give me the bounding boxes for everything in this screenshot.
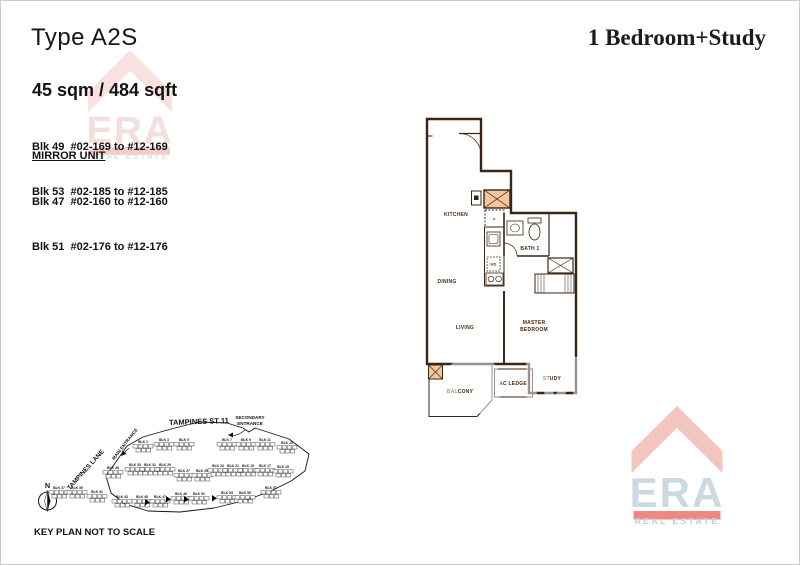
keyplan-blk-17: BLK 17 xyxy=(255,464,275,476)
era-watermark-bottom-right: ERA REAL ESTATE xyxy=(629,399,725,525)
block-line: Blk 47 #02-160 to #12-160 xyxy=(32,195,168,210)
keyplan-blk-5: BLK 5 xyxy=(174,438,194,450)
svg-text:BLK 35: BLK 35 xyxy=(107,466,119,470)
main-entrance-label: MAIN ENTRANCE xyxy=(111,427,139,460)
keyplan-blk-7: BLK 7 xyxy=(217,438,237,450)
svg-text:BLK 13: BLK 13 xyxy=(281,441,293,445)
mirror-unit-label: MIRROR UNIT xyxy=(32,150,105,162)
room-label-dining: DINING xyxy=(438,279,457,285)
svg-text:BLK 43: BLK 43 xyxy=(116,495,128,499)
block-line: Blk 51 #02-176 to #12-176 xyxy=(32,240,168,255)
svg-text:BLK 31: BLK 31 xyxy=(144,463,156,467)
floorplan-page: ERA REAL ESTATE Type A2S 1 Bedroom+Study… xyxy=(0,0,800,565)
keyplan-blk-43: BLK 43 xyxy=(112,495,132,507)
svg-text:BLK 7: BLK 7 xyxy=(222,438,232,442)
era-tagline-text: REAL ESTATE xyxy=(635,516,720,525)
compass-needle-light xyxy=(45,491,48,512)
kitchen-counter xyxy=(485,227,505,286)
svg-text:BLK 3: BLK 3 xyxy=(159,438,169,442)
entry-door-arc xyxy=(459,133,481,155)
svg-text:BLK 57: BLK 57 xyxy=(265,486,277,490)
svg-text:BLK 1: BLK 1 xyxy=(138,440,148,444)
unit-area: 45 sqm / 484 sqft xyxy=(32,80,177,101)
keyplan-blk-41: BLK 41 xyxy=(87,490,107,502)
burner xyxy=(496,276,502,282)
keyplan-blk-55: BLK 55 xyxy=(235,491,255,503)
room-labels: KITCHENDININGLIVINGMASTERBEDROOMBATH 1BA… xyxy=(438,212,562,395)
room-label-kitchen: KITCHEN xyxy=(444,212,468,218)
era-chevron-icon xyxy=(632,406,723,473)
tampines-lane-label: TAMPINES LANE xyxy=(66,448,106,492)
svg-text:BLK 5: BLK 5 xyxy=(179,438,189,442)
keyplan-drawing: TAMPINES ST 11 SECONDARY ENTRANCE MAIN E… xyxy=(31,401,321,541)
keyplan-blk-53: BLK 53 xyxy=(212,491,237,503)
keyplan-blk-1: BLK 1 xyxy=(133,440,153,452)
svg-text:BLK 17: BLK 17 xyxy=(259,464,271,468)
era-brand-text: ERA xyxy=(630,469,725,516)
svg-text:BLK 19: BLK 19 xyxy=(242,464,254,468)
room-label-wd: WD xyxy=(490,263,496,267)
unit-outline xyxy=(427,119,576,393)
keyplan-blk-27: BLK 27 xyxy=(174,469,194,481)
svg-text:BLK 11: BLK 11 xyxy=(259,438,271,442)
room-label-living: LIVING xyxy=(456,325,474,331)
svg-text:BLK 29: BLK 29 xyxy=(159,463,171,467)
svg-text:BLK 25: BLK 25 xyxy=(196,469,208,473)
svg-text:BLK 21: BLK 21 xyxy=(227,464,239,468)
svg-text:BLK 15: BLK 15 xyxy=(277,465,289,469)
keyplan-blk-11: BLK 11 xyxy=(255,438,275,450)
keyplan-street-label: TAMPINES ST 11 xyxy=(169,416,229,427)
secondary-entrance-arrowhead xyxy=(228,433,233,438)
svg-text:BLK 39: BLK 39 xyxy=(71,486,83,490)
keyplan-blk-15: BLK 15 xyxy=(273,465,293,477)
room-label-bath-1: BATH 1 xyxy=(520,246,539,252)
secondary-entrance-label: SECONDARY xyxy=(235,415,264,420)
floorplan-drawing: KITCHENDININGLIVINGMASTERBEDROOMBATH 1BA… xyxy=(406,106,606,421)
svg-text:BLK 37: BLK 37 xyxy=(53,486,65,490)
room-label-study: STUDY xyxy=(543,376,562,382)
room-label-ac-ledge: AC LEDGE xyxy=(499,381,527,387)
svg-text:BLK 23: BLK 23 xyxy=(212,464,224,468)
toilet-bowl xyxy=(529,224,540,240)
keyplan-note: KEY PLAN NOT TO SCALE xyxy=(34,527,155,538)
keyplan-blk-9: BLK 9 xyxy=(236,438,256,450)
mirror-block-list: Blk 47 #02-160 to #12-160 Blk 51 #02-176… xyxy=(32,165,168,285)
sink-basin xyxy=(489,235,498,244)
bath-door-arc xyxy=(504,243,517,256)
keyplan-blk-29: BLK 29 xyxy=(155,463,175,475)
room-label-master-bedroom: MASTERBEDROOM xyxy=(520,320,548,333)
svg-text:BLK 33: BLK 33 xyxy=(129,463,141,467)
toilet-tank xyxy=(528,218,541,223)
svg-text:BLK 45: BLK 45 xyxy=(136,495,148,499)
db-dot xyxy=(474,196,479,201)
north-label: N xyxy=(45,483,50,490)
basin xyxy=(507,221,523,235)
page-title: Type A2S xyxy=(31,24,138,52)
room-label-f: F xyxy=(493,218,495,222)
svg-text:BLK 47: BLK 47 xyxy=(154,495,166,499)
svg-text:BLK 41: BLK 41 xyxy=(91,490,103,494)
burner xyxy=(488,276,494,282)
keyplan-blk-45: BLK 45 xyxy=(132,495,152,507)
svg-text:BLK 49: BLK 49 xyxy=(175,492,187,496)
room-label-balcony: BALCONY xyxy=(447,389,474,395)
unit-type-title: 1 Bedroom+Study xyxy=(588,25,766,51)
secondary-entrance-label: ENTRANCE xyxy=(237,421,263,426)
svg-text:BLK 53: BLK 53 xyxy=(221,491,233,495)
keyplan-blk-3: BLK 3 xyxy=(154,438,174,450)
basin-bowl xyxy=(511,224,520,232)
svg-text:BLK 55: BLK 55 xyxy=(239,491,251,495)
subject-block-marker xyxy=(212,495,217,502)
svg-text:BLK 51: BLK 51 xyxy=(193,492,205,496)
keyplan-blk-35: BLK 35 xyxy=(103,466,123,478)
svg-text:BLK 27: BLK 27 xyxy=(178,469,190,473)
svg-text:BLK 9: BLK 9 xyxy=(241,438,251,442)
